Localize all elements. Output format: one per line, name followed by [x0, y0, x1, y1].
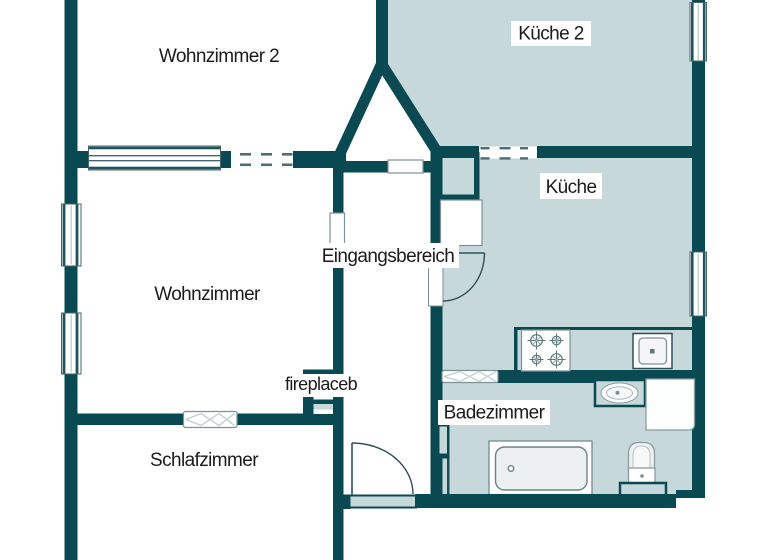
svg-text:fireplaceb: fireplaceb [285, 374, 358, 394]
svg-text:Eingangsbereich: Eingangsbereich [322, 246, 455, 267]
svg-text:Wohnzimmer: Wohnzimmer [154, 284, 261, 305]
svg-text:Wohnzimmer 2: Wohnzimmer 2 [159, 46, 279, 67]
svg-text:Schlafzimmer: Schlafzimmer [150, 450, 259, 471]
svg-text:Küche: Küche [546, 177, 597, 198]
svg-text:Küche 2: Küche 2 [518, 24, 584, 45]
svg-text:Badezimmer: Badezimmer [444, 403, 546, 424]
